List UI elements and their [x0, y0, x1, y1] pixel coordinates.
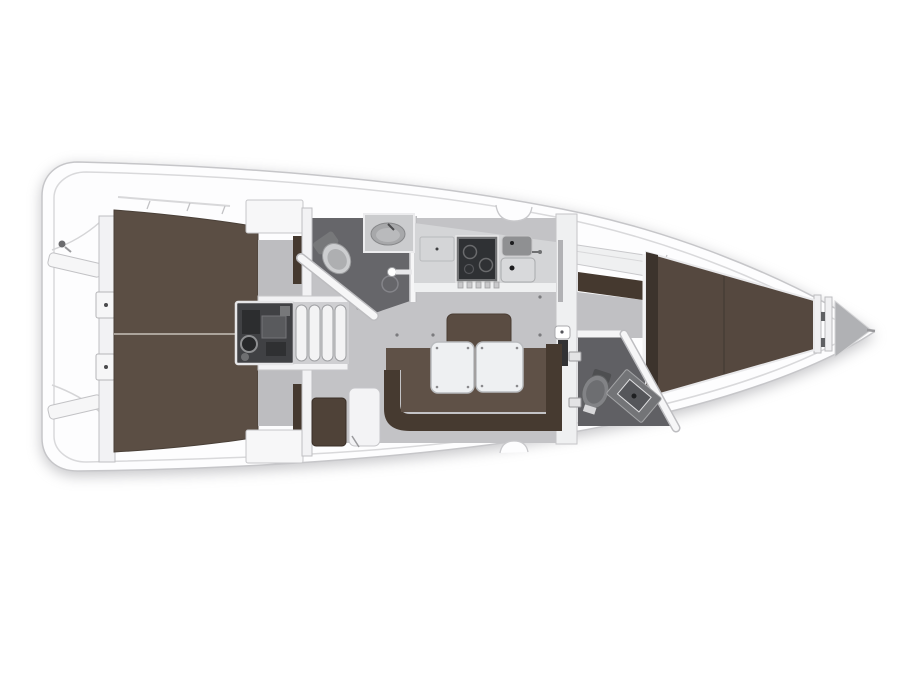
locker-notch-2: [821, 338, 825, 347]
cockpit-locker-bottom: [246, 430, 303, 463]
bulkhead-hinge-bottom: [569, 398, 581, 407]
bulkhead-hinge-top: [569, 352, 581, 361]
step-3: [322, 305, 333, 361]
engine-block-4: [280, 306, 290, 316]
galley-faucet-base: [538, 250, 542, 254]
bow-fitting: [867, 330, 875, 331]
door-handle-dot: [560, 330, 563, 333]
cockpit-locker-top: [246, 200, 303, 233]
chain-locker-wall-2: [825, 297, 832, 351]
step-2: [309, 305, 320, 361]
yacht-floorplan-canvas: [0, 0, 900, 675]
sink-lower: [501, 258, 535, 282]
nav-seat: [312, 398, 346, 446]
table-leaf-right: [476, 342, 523, 392]
stern-cleat: [59, 241, 66, 248]
engine-block-1: [242, 310, 260, 334]
sink-lower-drain: [510, 266, 515, 271]
companionway: [293, 302, 349, 364]
anchor-locker: [835, 301, 871, 357]
sink-upper: [502, 236, 532, 256]
engine-block-3: [266, 342, 286, 356]
engine-block-2: [262, 316, 286, 338]
latch-dot-bottom: [104, 365, 108, 369]
locker-notch-1: [821, 312, 825, 321]
companionway-wall-lower: [302, 360, 312, 456]
floorplan-svg: [0, 0, 900, 675]
step-1: [296, 305, 307, 361]
engine-filter: [241, 336, 257, 352]
aft-head-door-knob: [388, 268, 397, 277]
latch-dot-top: [104, 303, 108, 307]
step-4: [335, 305, 346, 361]
fwd-bulkhead-shadow: [558, 240, 563, 302]
locker-lid-latch: [436, 248, 439, 251]
transom-bulkhead-wall: [99, 216, 115, 462]
transom-bulkhead: [96, 216, 115, 462]
sink-upper-drain: [510, 241, 514, 245]
aft-head-sink-inner: [376, 228, 400, 242]
chain-locker-wall-1: [814, 295, 821, 353]
table-leaf-left: [431, 342, 474, 393]
engine-cap: [241, 353, 249, 361]
engine-compartment: [236, 302, 294, 364]
